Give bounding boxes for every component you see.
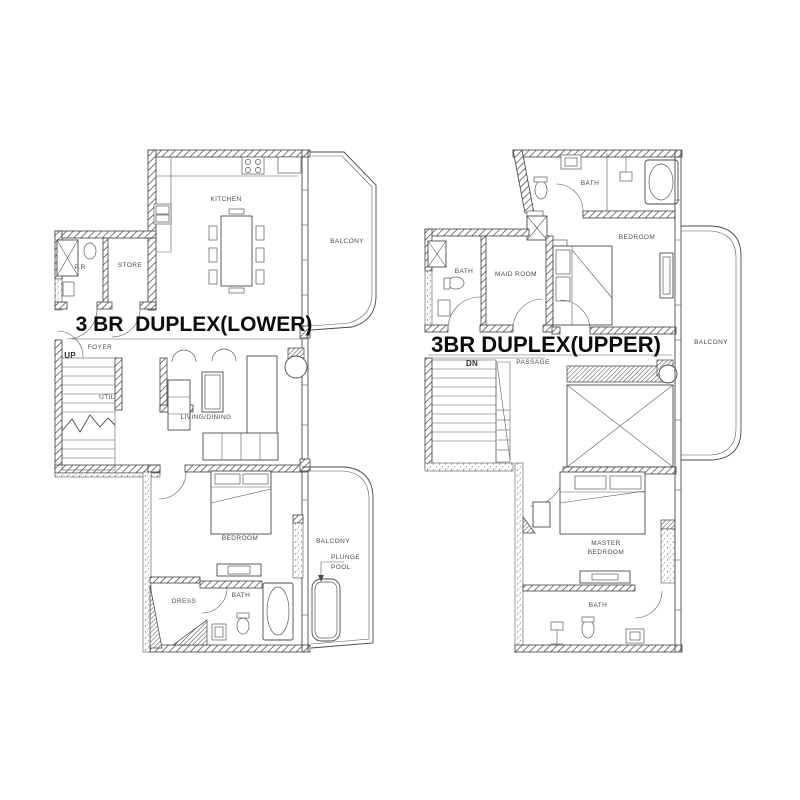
room-label-pr: P.R (74, 265, 85, 272)
label-plunge-pool-line1: PLUNGE (331, 555, 360, 562)
room-label-util: UTIL (99, 395, 115, 402)
room-label-passage: PASSAGE (516, 360, 549, 367)
floor-plan-drawing (0, 0, 800, 800)
room-label-master-bedroom-line2: BEDROOM (588, 550, 624, 557)
room-label-balcony-upper-lower-plan: BALCONY (330, 239, 364, 246)
plan-title-upper: 3BR DUPLEX(UPPER) (431, 332, 661, 358)
room-label-foyer: FOYER (88, 345, 112, 352)
room-label-bath-left-upper-plan: BATH (455, 269, 473, 276)
upper-plan-linework (425, 150, 741, 652)
room-label-balcony-lower-lower-plan: BALCONY (316, 539, 350, 546)
plan-title-lower: 3 BR DUPLEX(LOWER) (76, 313, 313, 337)
room-label-bedroom-lower: BEDROOM (222, 536, 258, 543)
room-label-bedroom-upper: BEDROOM (619, 235, 655, 242)
label-plunge-pool-line2: POOL (331, 565, 351, 572)
room-label-maid-room: MAID ROOM (495, 272, 537, 279)
room-label-master-bedroom-line1: MASTER (591, 541, 621, 548)
room-label-dress: DRESS (172, 599, 196, 606)
stair-label-up: UP (64, 352, 76, 360)
room-label-bath-bottom-upper-plan: BATH (589, 603, 607, 610)
room-label-kitchen: KITCHEN (210, 197, 241, 204)
room-label-balcony-upper-plan: BALCONY (694, 340, 728, 347)
room-label-store: STORE (118, 263, 142, 270)
floor-plan-page: 3 BR DUPLEX(LOWER) 3BR DUPLEX(UPPER) KIT… (0, 0, 800, 800)
room-label-bath-top-upper-plan: BATH (581, 181, 599, 188)
stair-label-dn: DN (466, 360, 478, 368)
room-label-bath-lower: BATH (232, 593, 250, 600)
room-label-living-dining: LIVING/DINING (180, 415, 231, 422)
